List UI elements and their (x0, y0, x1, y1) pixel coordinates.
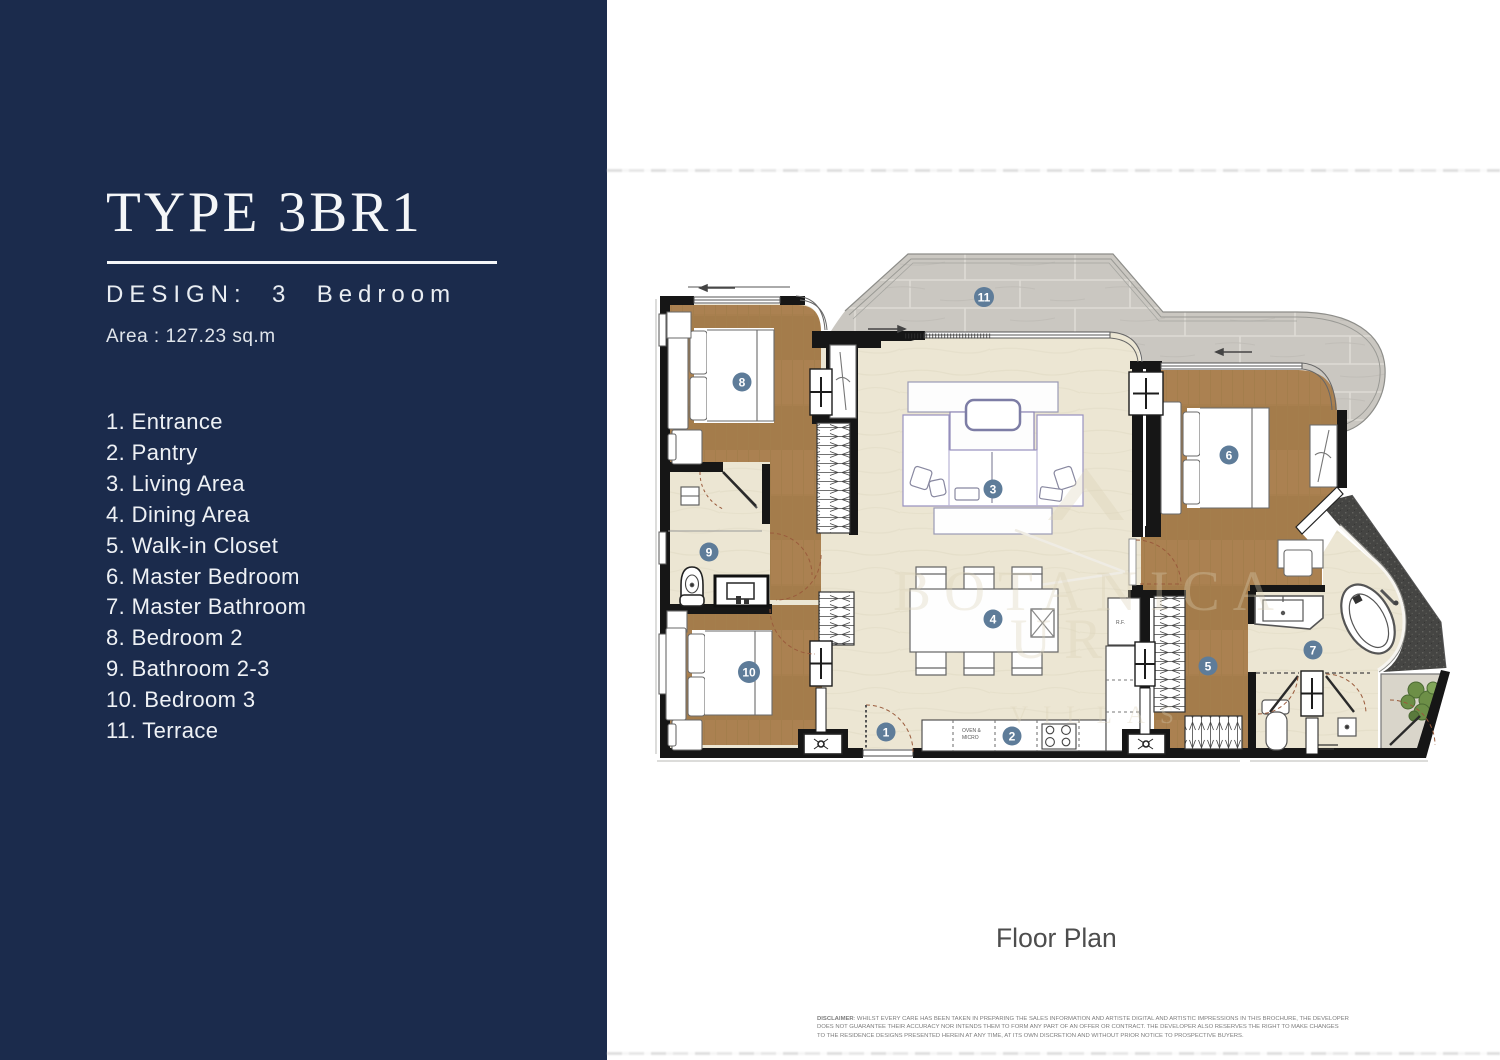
svg-text:2: 2 (1009, 730, 1016, 744)
svg-text:10: 10 (742, 666, 756, 680)
svg-text:4: 4 (990, 613, 997, 627)
svg-text:8: 8 (739, 376, 746, 390)
svg-text:UR: UR (1010, 608, 1115, 671)
svg-text:VILLAS: VILLAS (1010, 702, 1189, 729)
svg-text:MICRO: MICRO (962, 735, 979, 741)
svg-text:7: 7 (1310, 644, 1317, 658)
svg-text:9: 9 (706, 546, 713, 560)
svg-text:1: 1 (883, 726, 890, 740)
svg-text:3: 3 (990, 483, 997, 497)
svg-text:11: 11 (978, 291, 991, 305)
svg-text:OVEN &: OVEN & (962, 728, 982, 734)
svg-text:5: 5 (1205, 660, 1212, 674)
svg-text:6: 6 (1226, 449, 1233, 463)
